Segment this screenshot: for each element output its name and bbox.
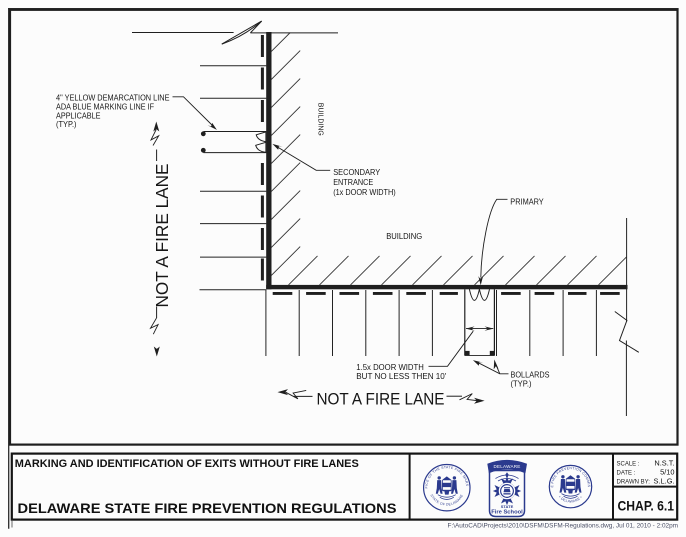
svg-text:N.S.T.: N.S.T. bbox=[654, 459, 674, 468]
svg-text:NOT A FIRE LANE: NOT A FIRE LANE bbox=[152, 164, 172, 308]
svg-text:DELAWARE STATE FIRE PREVENTION: DELAWARE STATE FIRE PREVENTION REGULATIO… bbox=[18, 500, 397, 516]
svg-text:PRIMARY: PRIMARY bbox=[510, 198, 544, 207]
svg-text:5/10: 5/10 bbox=[660, 468, 674, 477]
svg-text:(1x DOOR WIDTH): (1x DOOR WIDTH) bbox=[333, 188, 396, 197]
svg-text:NOT A FIRE LANE: NOT A FIRE LANE bbox=[317, 389, 445, 408]
svg-text:MARKING AND IDENTIFICATION OF: MARKING AND IDENTIFICATION OF EXITS WITH… bbox=[15, 458, 359, 470]
svg-text:DRAWN BY:: DRAWN BY: bbox=[617, 479, 651, 485]
svg-text:BOLLARDS: BOLLARDS bbox=[511, 370, 550, 379]
svg-text:SCALE :: SCALE : bbox=[617, 461, 640, 467]
svg-text:ADA BLUE MARKING LINE IF: ADA BLUE MARKING LINE IF bbox=[56, 103, 154, 112]
svg-text:APPLICABLE: APPLICABLE bbox=[56, 111, 101, 120]
svg-text:SECONDARY: SECONDARY bbox=[333, 168, 381, 177]
svg-text:4" YELLOW DEMARCATION LINE: 4" YELLOW DEMARCATION LINE bbox=[56, 94, 170, 103]
svg-text:STATE: STATE bbox=[501, 504, 514, 509]
svg-text:DELAWARE: DELAWARE bbox=[493, 464, 520, 469]
svg-text:CHAP. 6.1: CHAP. 6.1 bbox=[618, 499, 675, 514]
svg-text:Fire School: Fire School bbox=[491, 510, 523, 516]
svg-text:BUILDING: BUILDING bbox=[317, 103, 326, 136]
svg-text:(TYP.): (TYP.) bbox=[511, 380, 532, 389]
svg-text:DATE :: DATE : bbox=[617, 470, 636, 476]
svg-text:S.L.G.: S.L.G. bbox=[654, 477, 675, 486]
svg-text:BUILDING: BUILDING bbox=[386, 232, 422, 241]
svg-text:(TYP.): (TYP.) bbox=[56, 120, 77, 129]
svg-text:BUT NO LESS THEN 10': BUT NO LESS THEN 10' bbox=[356, 372, 446, 381]
svg-text:ENTRANCE: ENTRANCE bbox=[333, 178, 373, 187]
svg-text:1.5x DOOR WIDTH: 1.5x DOOR WIDTH bbox=[356, 363, 424, 372]
svg-text:F:\AutoCAD\Projects\2010\DSFM\: F:\AutoCAD\Projects\2010\DSFM\DSFM-Regul… bbox=[448, 523, 679, 530]
